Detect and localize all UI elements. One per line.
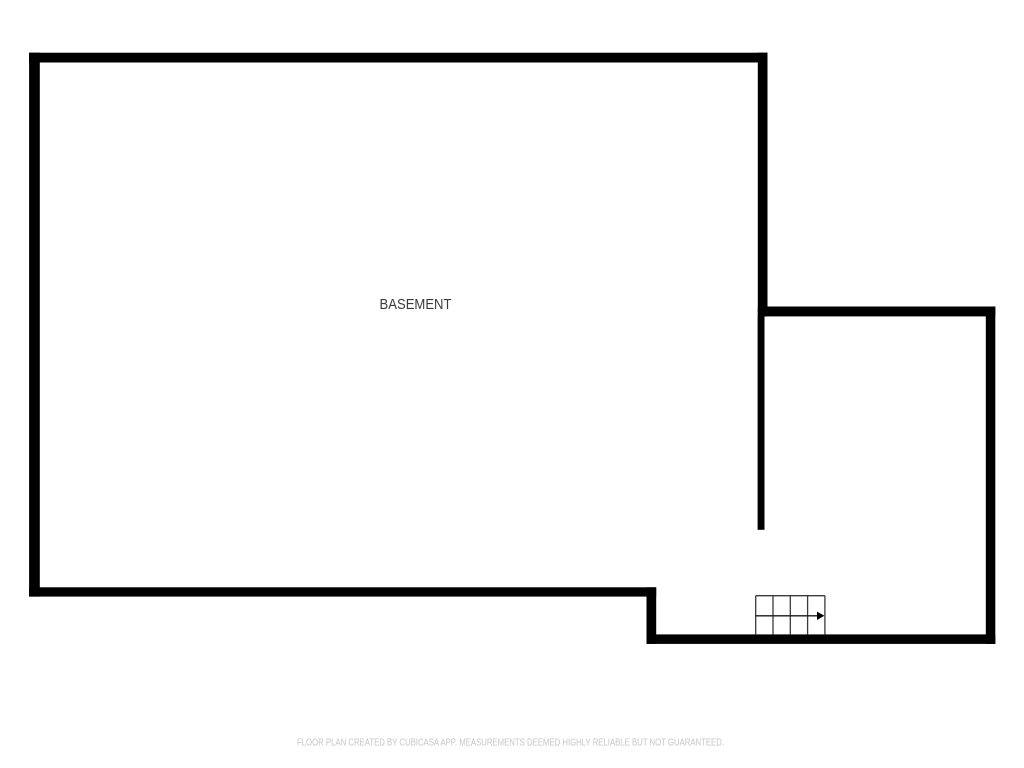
svg-text:BASEMENT: BASEMENT — [380, 297, 452, 313]
svg-text:FLOOR PLAN CREATED BY CUBICASA: FLOOR PLAN CREATED BY CUBICASA APP. MEAS… — [297, 738, 724, 749]
